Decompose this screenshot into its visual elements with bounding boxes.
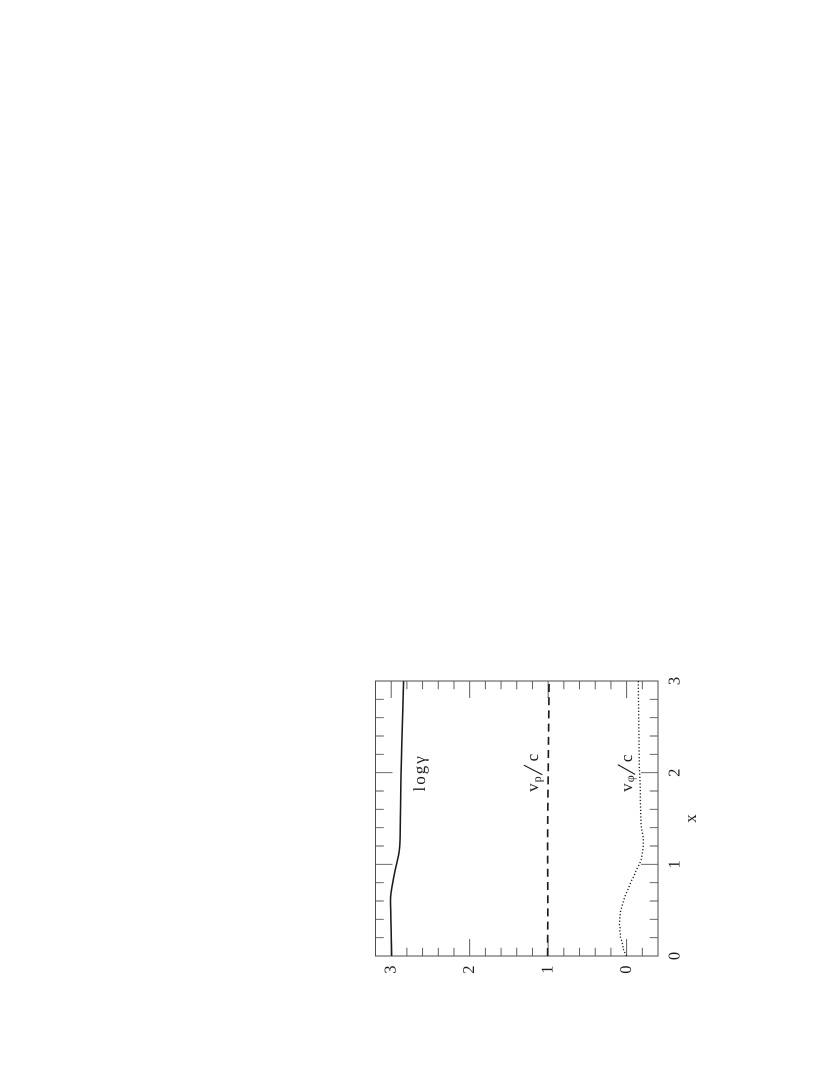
svg-text:φ: φ [623, 775, 637, 782]
svg-text:p: p [530, 776, 544, 782]
svg-text:0: 0 [665, 952, 684, 960]
svg-text:x: x [681, 814, 700, 823]
svg-text:v: v [617, 783, 636, 792]
svg-text:0: 0 [616, 966, 635, 974]
svg-text:1: 1 [537, 966, 556, 974]
svg-text:3: 3 [665, 677, 684, 685]
svg-text:3: 3 [381, 966, 400, 974]
svg-text:2: 2 [665, 769, 684, 777]
svg-text:2: 2 [459, 966, 478, 974]
svg-text:logγ: logγ [410, 754, 429, 791]
svg-text:v: v [523, 783, 542, 792]
svg-text:1: 1 [665, 860, 684, 868]
svg-text:c: c [523, 753, 542, 761]
svg-text:c: c [617, 754, 636, 762]
